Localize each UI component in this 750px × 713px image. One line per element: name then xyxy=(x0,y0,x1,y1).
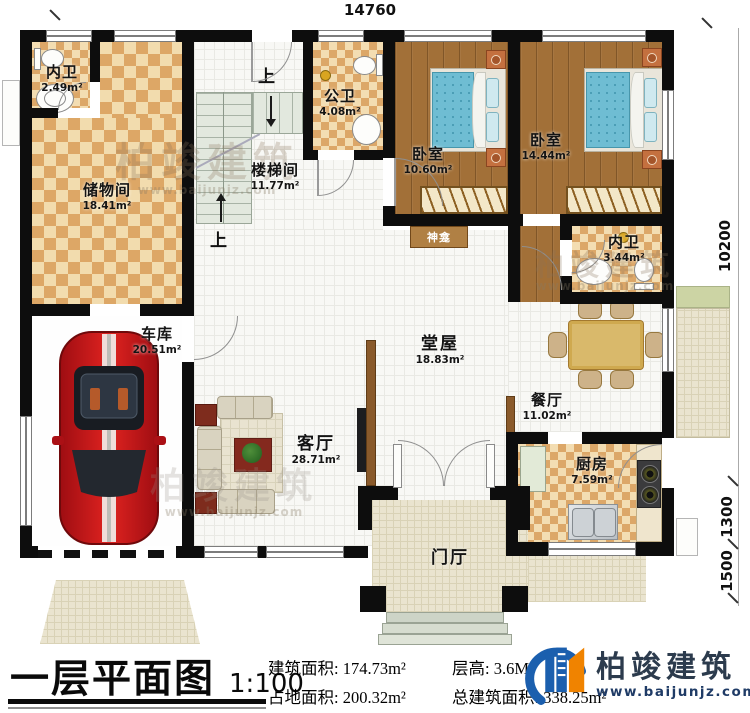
foyer-pillar xyxy=(360,586,386,612)
toilet-icon xyxy=(353,56,376,75)
wall-bedroom1-bottom xyxy=(383,214,523,226)
stat-building-area: 建筑面积: 174.73m² xyxy=(268,655,406,679)
window xyxy=(46,30,92,42)
dimension-right-terrace: 1500 xyxy=(714,542,740,600)
wall-bath2-top xyxy=(560,214,662,226)
shrine: 神龛 xyxy=(410,226,468,248)
wardrobe xyxy=(566,186,662,214)
side-table xyxy=(195,492,217,514)
dimension-tick xyxy=(727,475,738,486)
window xyxy=(266,546,344,558)
pillow xyxy=(486,112,499,142)
window xyxy=(204,546,258,558)
sink-icon xyxy=(352,114,381,145)
stair-arrowhead xyxy=(266,119,276,127)
stair-up-label: 上 xyxy=(210,226,227,251)
floor-drain xyxy=(320,70,331,81)
wall-storage-right xyxy=(182,42,194,304)
wall-bath1 xyxy=(90,42,100,82)
toilet-tank xyxy=(34,48,41,70)
window xyxy=(542,30,646,42)
dining-chair xyxy=(578,370,602,389)
door-leaf xyxy=(394,158,396,206)
dimension-tick xyxy=(49,9,60,20)
sofa-left xyxy=(197,426,222,490)
wall-publicbath-left xyxy=(303,42,313,150)
wall-hall-bottom xyxy=(490,486,518,500)
brand-website: www.baijunjz.com xyxy=(596,684,750,700)
floor-plan-sheet: 14760 10200 1300 1500 上 上 xyxy=(0,0,750,713)
dining-chair xyxy=(548,332,567,358)
toilet-icon xyxy=(41,49,64,68)
door-gap xyxy=(560,240,572,276)
sink-basin xyxy=(572,508,594,537)
dimension-top: 14760 xyxy=(310,1,430,19)
window xyxy=(404,30,492,42)
toilet-tank xyxy=(376,54,383,76)
stair-direction-arrow xyxy=(220,200,222,222)
window xyxy=(548,542,636,556)
sofa-top xyxy=(217,396,273,419)
stair-flight xyxy=(196,92,252,224)
brand-text: 柏竣建筑 www.baijunjz.com xyxy=(596,652,750,700)
wall-storage-garage xyxy=(140,304,182,316)
title-underline xyxy=(8,699,266,704)
entry-step xyxy=(378,634,512,645)
garage-door-dashed xyxy=(36,550,176,558)
window xyxy=(662,308,674,372)
brand-name: 柏竣建筑 xyxy=(596,652,750,684)
bed-mattress xyxy=(432,72,474,148)
pillow xyxy=(486,78,499,108)
stat-floor-height: 层高: 3.6M xyxy=(452,655,529,679)
shrine-label: 神龛 xyxy=(427,229,451,245)
wall-hall-nook xyxy=(508,226,520,302)
dimension-right-porch: 1300 xyxy=(714,488,740,546)
wall-hall-bottom xyxy=(368,486,398,500)
door-gap xyxy=(318,150,354,160)
toilet-tank xyxy=(634,283,654,290)
door-gap xyxy=(182,316,194,362)
brand-logo-icon xyxy=(520,642,590,710)
stat-land-area: 占地面积: 200.32m² xyxy=(268,684,406,708)
garage-ramp xyxy=(40,580,200,644)
toilet-icon xyxy=(634,258,654,282)
door-gap xyxy=(662,438,674,488)
window xyxy=(20,416,32,526)
sink-basin xyxy=(594,508,616,537)
burner-icon xyxy=(641,486,659,504)
pillow xyxy=(644,78,657,108)
window xyxy=(318,30,364,42)
wall-foyer-stub xyxy=(516,486,530,530)
title-underline xyxy=(8,707,266,709)
sheet-title-text: 一层平面图 xyxy=(10,648,215,704)
door-gap xyxy=(252,30,292,42)
window xyxy=(662,90,674,160)
storage-floor xyxy=(100,42,182,118)
door-leaf xyxy=(251,42,253,82)
dining-table xyxy=(568,320,644,370)
plant-icon xyxy=(242,443,262,463)
nightstand xyxy=(486,50,506,69)
wall-bath2-bottom xyxy=(560,292,674,304)
bed-blanket xyxy=(472,72,486,148)
foyer-pillar xyxy=(502,586,528,612)
brand-logo: 柏竣建筑 www.baijunjz.com xyxy=(520,642,750,710)
dimension-offset-box xyxy=(2,80,20,146)
tv-wall xyxy=(366,340,376,486)
window xyxy=(114,30,176,42)
tv-icon xyxy=(357,408,366,472)
wall-bedroom1-left xyxy=(383,42,395,158)
stair-direction-arrow xyxy=(270,96,272,120)
wall-bath1 xyxy=(32,108,58,118)
wall-foyer-stub xyxy=(358,486,372,530)
terrace-floor xyxy=(528,556,646,602)
dimension-offset-box xyxy=(676,518,698,556)
bed-mattress xyxy=(586,72,630,148)
floor-drain xyxy=(618,232,629,243)
bed-blanket xyxy=(630,72,644,148)
nightstand xyxy=(642,150,662,169)
dining-chair xyxy=(610,370,634,389)
stair-rail xyxy=(223,92,224,224)
stair-landing xyxy=(252,92,303,134)
nightstand xyxy=(642,48,662,67)
wall-storage-garage xyxy=(32,304,90,316)
wall-bedroom-divider xyxy=(508,42,520,226)
sofa-bottom xyxy=(218,489,275,514)
side-patio-strip xyxy=(676,286,730,308)
sheet-title: 一层平面图 1:100 xyxy=(10,648,304,704)
door-leaf xyxy=(317,160,319,196)
stair-arrowhead xyxy=(216,193,226,201)
dimension-tick xyxy=(701,17,712,28)
door-gap xyxy=(548,432,582,444)
pillow xyxy=(644,112,657,142)
dimension-right-total: 10200 xyxy=(712,206,738,286)
entry-door-leaf xyxy=(486,444,495,488)
wall-segment xyxy=(20,546,38,558)
entry-step xyxy=(386,612,504,623)
storage-floor xyxy=(32,118,182,304)
side-patio-floor xyxy=(676,308,730,438)
side-table xyxy=(195,404,217,426)
car-icon xyxy=(50,328,168,548)
entry-door-leaf xyxy=(393,444,402,488)
wall-kitchen-top xyxy=(506,432,674,444)
entry-step xyxy=(382,623,508,634)
nightstand xyxy=(486,148,506,167)
